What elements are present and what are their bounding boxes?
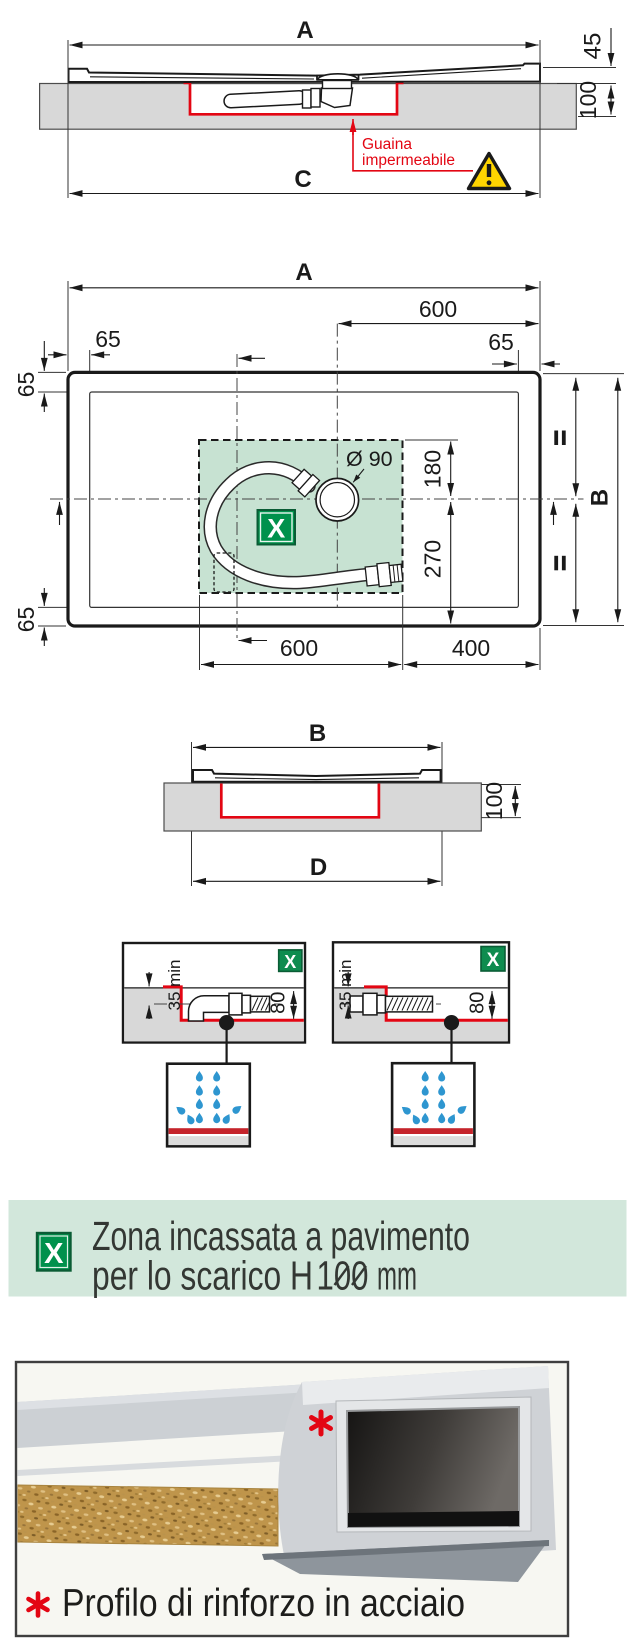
- svg-text:C: C: [294, 166, 311, 193]
- svg-text:35 min: 35 min: [165, 959, 184, 1010]
- svg-text:X: X: [487, 950, 500, 971]
- svg-text:35 min: 35 min: [336, 959, 355, 1010]
- svg-text:600: 600: [419, 296, 457, 322]
- svg-text:Profilo di rinforzo in acciaio: Profilo di rinforzo in acciaio: [62, 1582, 465, 1625]
- svg-text:mm: mm: [377, 1253, 417, 1299]
- svg-text:400: 400: [452, 635, 490, 661]
- svg-text:X: X: [284, 952, 296, 972]
- svg-text:impermeabile: impermeabile: [362, 152, 455, 169]
- svg-text:65: 65: [13, 607, 39, 633]
- svg-text:80: 80: [466, 992, 488, 1014]
- svg-text:A: A: [296, 17, 313, 44]
- svg-text:D: D: [310, 854, 327, 881]
- svg-text:180: 180: [420, 450, 446, 488]
- svg-text:600: 600: [280, 635, 318, 661]
- svg-text:65: 65: [488, 329, 514, 355]
- svg-text:45: 45: [579, 33, 606, 60]
- svg-text:X: X: [44, 1238, 64, 1270]
- svg-text:X: X: [267, 514, 285, 544]
- svg-text:per lo scarico H: per lo scarico H: [92, 1253, 313, 1299]
- svg-text:270: 270: [420, 540, 446, 578]
- svg-text:B: B: [309, 720, 326, 747]
- svg-text:65: 65: [95, 326, 121, 352]
- svg-text:B: B: [587, 489, 614, 506]
- svg-text:A: A: [295, 259, 312, 286]
- svg-text:100: 100: [575, 81, 601, 119]
- svg-text:Guaina: Guaina: [362, 136, 412, 153]
- svg-text:100: 100: [481, 782, 507, 820]
- svg-text:65: 65: [13, 372, 39, 398]
- svg-text:Ø 90: Ø 90: [346, 447, 393, 471]
- svg-text:80: 80: [267, 992, 289, 1014]
